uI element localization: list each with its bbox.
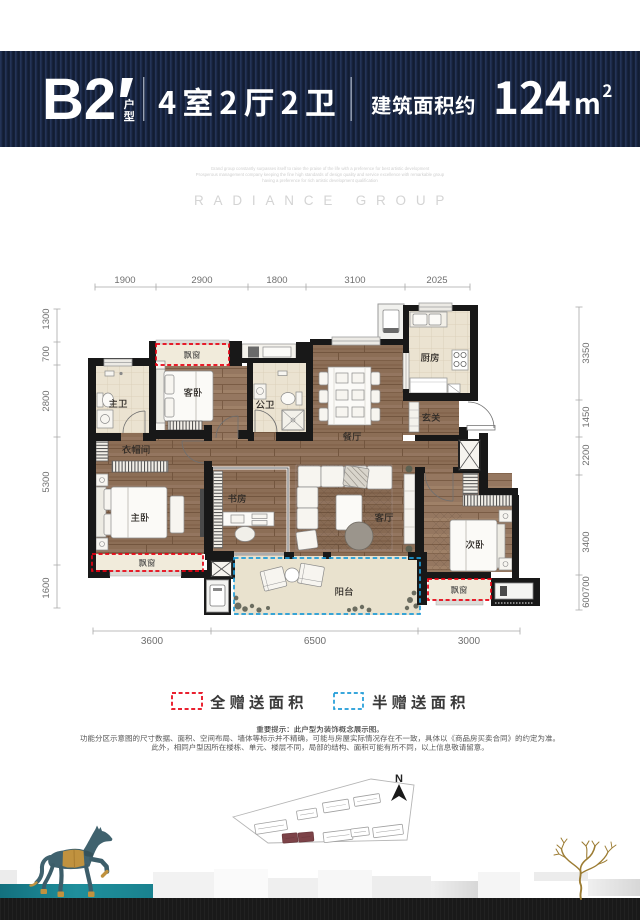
svg-text:1300: 1300 xyxy=(41,308,52,329)
svg-text:600700: 600700 xyxy=(581,576,592,608)
svg-text:B2: B2 xyxy=(42,67,116,132)
svg-text:3350: 3350 xyxy=(581,342,592,363)
svg-text:700: 700 xyxy=(41,346,52,362)
svg-text:1450: 1450 xyxy=(581,406,592,427)
svg-text:1800: 1800 xyxy=(266,275,287,286)
svg-text:3600: 3600 xyxy=(141,636,164,647)
svg-text:2025: 2025 xyxy=(426,275,447,286)
svg-text:Grand group constantly surpass: Grand group constantly surpasses itself … xyxy=(211,166,430,171)
svg-text:1600: 1600 xyxy=(41,577,52,598)
svg-text:1900: 1900 xyxy=(114,275,135,286)
svg-text:3400: 3400 xyxy=(581,531,592,552)
svg-text:Prosperous management company: Prosperous management company keeping th… xyxy=(196,172,445,177)
svg-text:3100: 3100 xyxy=(344,275,365,286)
svg-text:6500: 6500 xyxy=(304,636,327,647)
svg-text:5300: 5300 xyxy=(41,471,52,492)
svg-text:having a preference for rich a: having a preference for rich artistic de… xyxy=(262,178,378,183)
svg-text:3000: 3000 xyxy=(458,636,481,647)
svg-text:2900: 2900 xyxy=(191,275,212,286)
svg-text:2800: 2800 xyxy=(41,390,52,411)
svg-text:2200: 2200 xyxy=(581,444,592,465)
svg-text:RADIANCE GROUP: RADIANCE GROUP xyxy=(194,193,454,208)
